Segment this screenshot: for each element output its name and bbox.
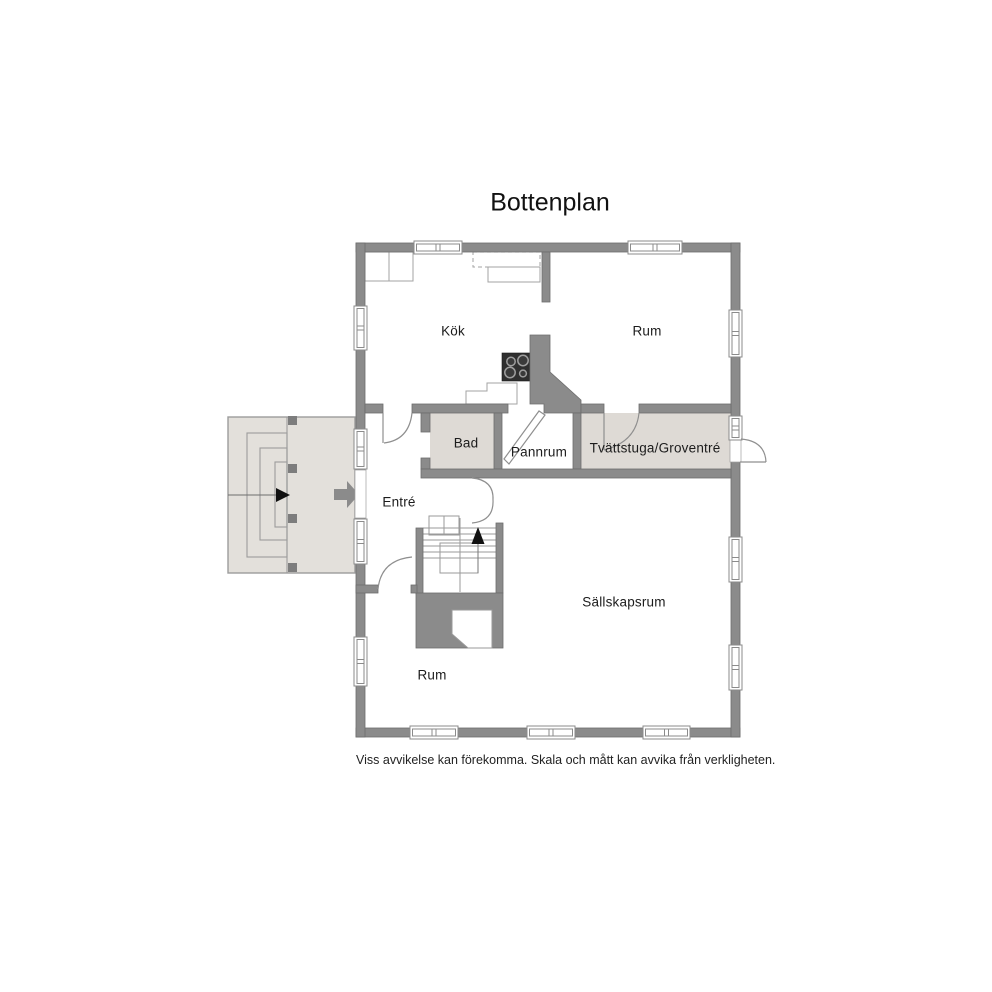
disclaimer-text: Viss avvikelse kan förekomma. Skala och … <box>356 753 775 767</box>
stove-icon <box>502 353 530 381</box>
window-icon <box>354 519 367 564</box>
room-label-boiler-room: Pannrum <box>511 445 567 460</box>
window-icon <box>354 429 367 469</box>
room-label-entry: Entré <box>382 495 415 510</box>
window-icon <box>729 416 742 440</box>
floor-plan-page: Bottenplan Kök Rum Bad Pannrum Tvättstug… <box>0 0 992 992</box>
window-icon <box>354 306 367 350</box>
window-icon <box>410 726 458 739</box>
window-icon <box>414 241 462 254</box>
window-icon <box>729 645 742 690</box>
window-icon <box>729 310 742 357</box>
room-label-room-top-right: Rum <box>632 324 661 339</box>
page-title: Bottenplan <box>490 189 610 218</box>
window-icon <box>354 637 367 686</box>
window-icon <box>527 726 575 739</box>
window-icon <box>729 537 742 582</box>
laundry-exterior-door-opening <box>730 439 741 462</box>
room-label-bathroom: Bad <box>454 436 479 451</box>
door-swing-icon <box>740 439 766 462</box>
porch <box>228 416 359 573</box>
window-icon <box>628 241 682 254</box>
room-label-room-bottom-left: Rum <box>417 668 446 683</box>
entry-door-opening <box>355 470 366 518</box>
room-label-living-room: Sällskapsrum <box>582 595 665 610</box>
window-icon <box>643 726 690 739</box>
floor-plan-drawing <box>0 0 992 992</box>
room-label-kitchen: Kök <box>441 324 465 339</box>
room-label-laundry: Tvättstuga/Groventré <box>590 441 721 456</box>
house-floor <box>360 247 736 733</box>
